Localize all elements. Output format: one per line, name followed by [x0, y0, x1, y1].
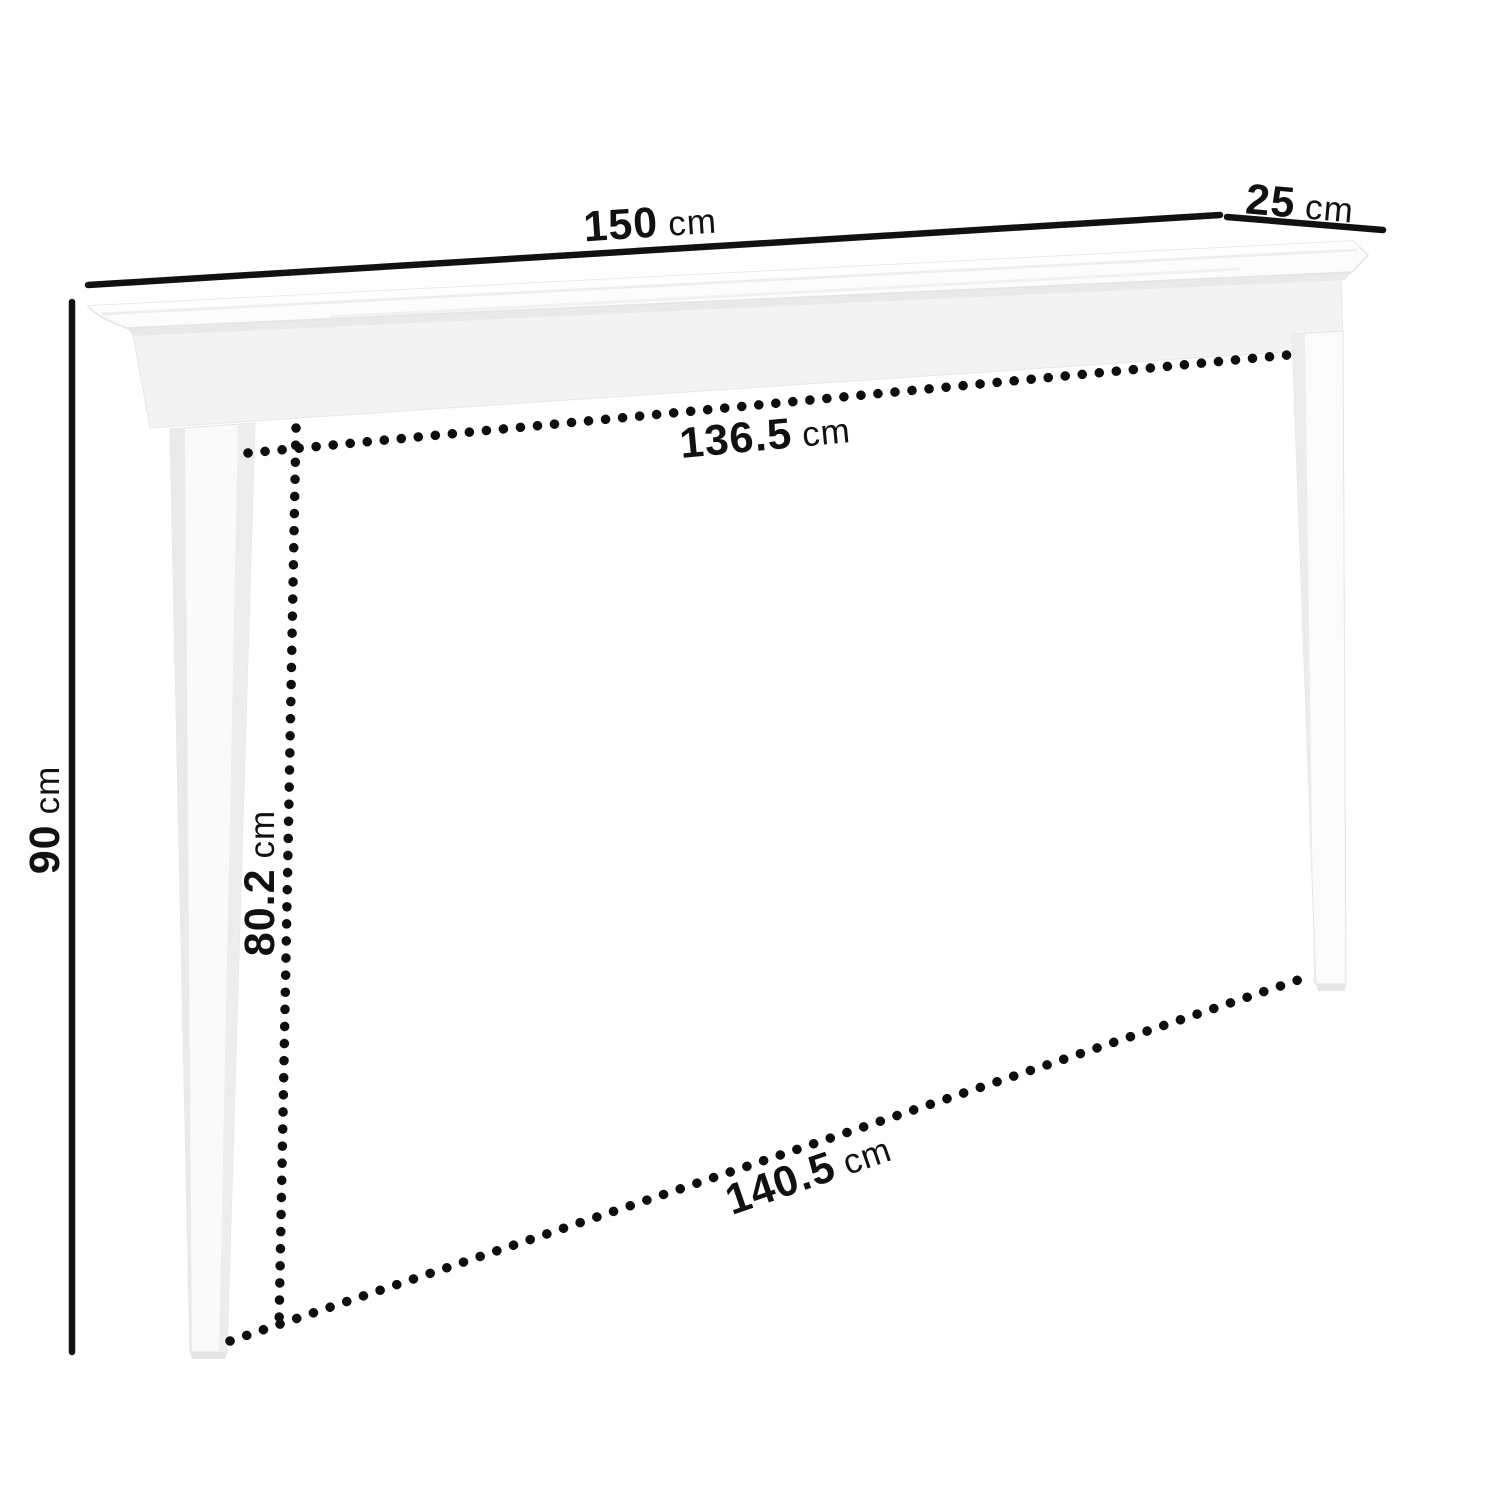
floor-span-dimension-label: 140.5cm	[720, 1123, 898, 1224]
inner-width-dimension-label: 136.5cm	[678, 404, 853, 468]
left-leg-foot	[190, 1352, 227, 1359]
floor-span-dotted-line	[230, 976, 1310, 1341]
width-dimension-label: 150cm	[582, 195, 718, 252]
dimension-diagram-canvas: 150cm 25cm 90cm 136.5cm 80.2cm 140.5cm	[0, 0, 1500, 1500]
right-leg-foot	[1316, 984, 1346, 991]
inner-height-dimension-label: 80.2cm	[236, 810, 284, 956]
height-dimension-label: 90cm	[21, 766, 69, 875]
right-leg	[1292, 331, 1346, 991]
